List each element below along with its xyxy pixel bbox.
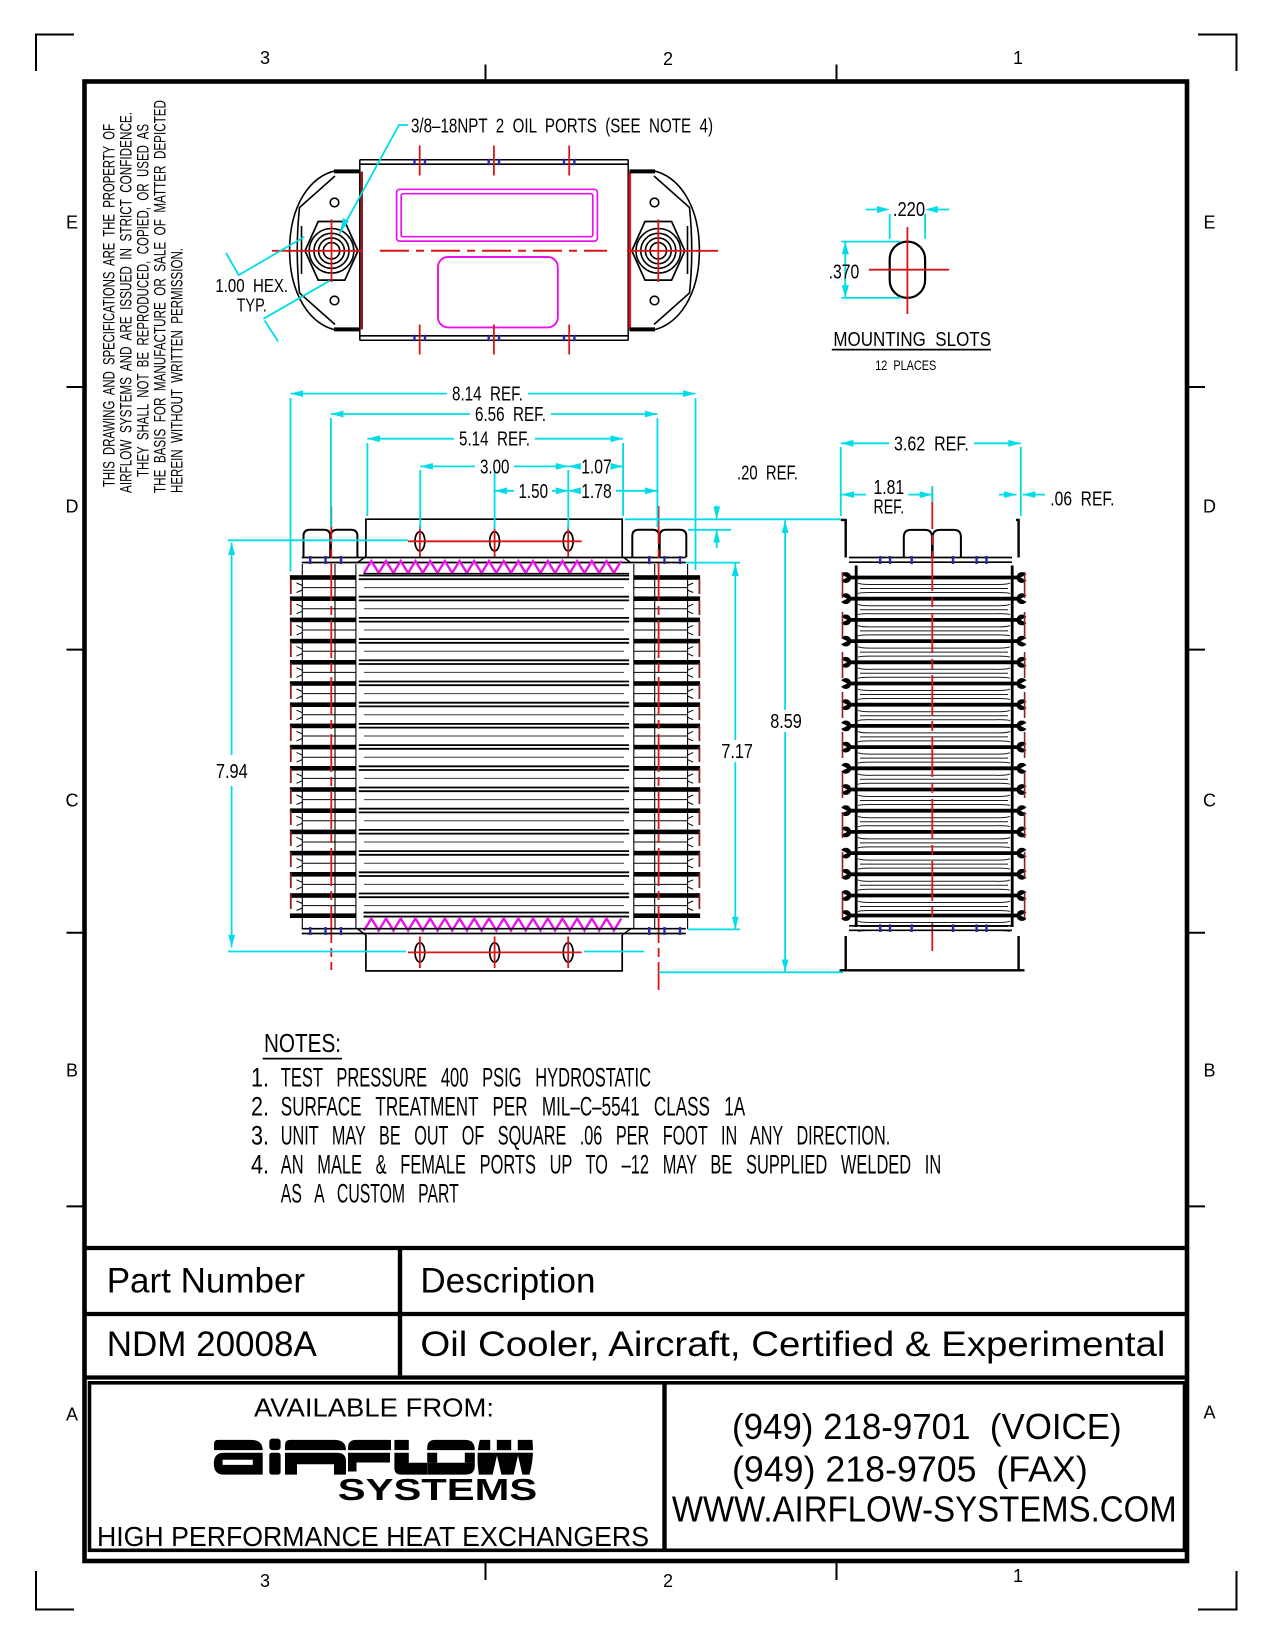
svg-text:C: C xyxy=(66,791,79,811)
svg-text:TYP.: TYP. xyxy=(237,295,267,315)
svg-text:6.56 REF.: 6.56 REF. xyxy=(475,404,546,426)
svg-text:HIGH PERFORMANCE HEAT EXCHANGE: HIGH PERFORMANCE HEAT EXCHANGERS xyxy=(97,1521,649,1552)
svg-text:3: 3 xyxy=(260,1571,270,1591)
svg-text:1: 1 xyxy=(1013,1566,1023,1586)
svg-text:3.: 3. xyxy=(251,1121,269,1151)
svg-text:NOTES:: NOTES: xyxy=(264,1028,341,1058)
svg-text:7.94: 7.94 xyxy=(216,761,248,783)
svg-text:1.: 1. xyxy=(251,1063,269,1093)
svg-text:5.14 REF.: 5.14 REF. xyxy=(459,429,530,451)
svg-text:8.14 REF.: 8.14 REF. xyxy=(452,384,523,406)
svg-text:3/8–18NPT 2 OIL PORTS (SEE: 3/8–18NPT 2 OIL PORTS (SEE NOTE 4) xyxy=(411,116,713,138)
svg-text:.06 REF.: .06 REF. xyxy=(1050,488,1114,510)
svg-text:8.59: 8.59 xyxy=(770,711,802,733)
svg-text:1.78: 1.78 xyxy=(581,481,612,503)
svg-text:7.17: 7.17 xyxy=(721,741,753,763)
svg-text:E: E xyxy=(66,213,78,233)
svg-text:.220: .220 xyxy=(893,199,925,221)
svg-text:THE BASIS FOR MANUFACTURE: THE BASIS FOR MANUFACTURE OR SALE OF MAT… xyxy=(152,100,170,493)
svg-text:1: 1 xyxy=(1013,48,1023,68)
svg-text:D: D xyxy=(1203,497,1216,517)
svg-text:12 PLACES: 12 PLACES xyxy=(875,357,936,373)
svg-text:1.07: 1.07 xyxy=(581,456,612,478)
svg-text:2: 2 xyxy=(663,49,673,69)
svg-text:SYSTEMS: SYSTEMS xyxy=(338,1473,537,1507)
svg-text:REF.: REF. xyxy=(874,497,905,519)
svg-text:A: A xyxy=(66,1405,78,1425)
svg-text:3.62 REF.: 3.62 REF. xyxy=(894,433,969,455)
svg-text:4.: 4. xyxy=(251,1150,269,1180)
svg-text:HEREIN WITHOUT WRITTEN PERM: HEREIN WITHOUT WRITTEN PERMISSION. xyxy=(169,248,187,493)
svg-text:TEST PRESSURE 400 PSIG: TEST PRESSURE 400 PSIG HYDROSTATIC xyxy=(281,1063,651,1093)
svg-text:(949) 218-9705 (FAX): (949) 218-9705 (FAX) xyxy=(732,1449,1088,1490)
svg-text:Oil Cooler, Aircraft, Certifie: Oil Cooler, Aircraft, Certified & Experi… xyxy=(420,1325,1165,1364)
svg-text:WWW.AIRFLOW-SYSTEMS.COM: WWW.AIRFLOW-SYSTEMS.COM xyxy=(672,1489,1177,1530)
svg-text:1.50: 1.50 xyxy=(519,481,549,503)
svg-text:.20 REF.: .20 REF. xyxy=(737,463,798,485)
svg-text:B: B xyxy=(1203,1061,1215,1081)
svg-text:2: 2 xyxy=(663,1571,673,1591)
svg-text:Part Number: Part Number xyxy=(107,1262,306,1301)
svg-text:.370: .370 xyxy=(829,261,860,283)
svg-text:3.00: 3.00 xyxy=(480,456,509,478)
svg-text:2.: 2. xyxy=(251,1092,269,1122)
svg-text:AVAILABLE FROM:: AVAILABLE FROM: xyxy=(254,1393,494,1423)
svg-text:Description: Description xyxy=(420,1262,595,1301)
svg-text:1.00 HEX.: 1.00 HEX. xyxy=(215,276,288,296)
svg-text:D: D xyxy=(66,497,79,517)
svg-text:3: 3 xyxy=(260,48,270,68)
svg-text:AIRFLOW SYSTEMS AND ARE IS: AIRFLOW SYSTEMS AND ARE ISSUED IN STRICT… xyxy=(118,112,136,493)
svg-text:AS A CUSTOM PART: AS A CUSTOM PART xyxy=(281,1179,459,1209)
svg-text:THEY SHALL NOT BE REPRODUC: THEY SHALL NOT BE REPRODUCED, COPIED, OR… xyxy=(135,124,153,477)
svg-text:(949) 218-9701 (VOICE): (949) 218-9701 (VOICE) xyxy=(732,1406,1122,1447)
svg-text:UNIT MAY BE OUT OF S: UNIT MAY BE OUT OF SQUARE .06 PER FOOT I… xyxy=(281,1121,890,1151)
svg-text:NDM 20008A: NDM 20008A xyxy=(107,1325,318,1364)
svg-text:A: A xyxy=(1203,1403,1215,1423)
svg-text:SURFACE TREATMENT PER MI: SURFACE TREATMENT PER MIL–C–5541 CLASS 1… xyxy=(281,1092,745,1122)
svg-text:THIS DRAWING AND SPECIFICAT: THIS DRAWING AND SPECIFICATIONS ARE THE … xyxy=(101,124,119,487)
svg-text:AN MALE & FEMALE PORTS: AN MALE & FEMALE PORTS UP TO –12 MAY BE … xyxy=(281,1150,941,1180)
svg-text:E: E xyxy=(1203,213,1215,233)
svg-text:B: B xyxy=(66,1061,78,1081)
svg-text:MOUNTING SLOTS: MOUNTING SLOTS xyxy=(833,328,991,351)
svg-text:C: C xyxy=(1203,791,1216,811)
